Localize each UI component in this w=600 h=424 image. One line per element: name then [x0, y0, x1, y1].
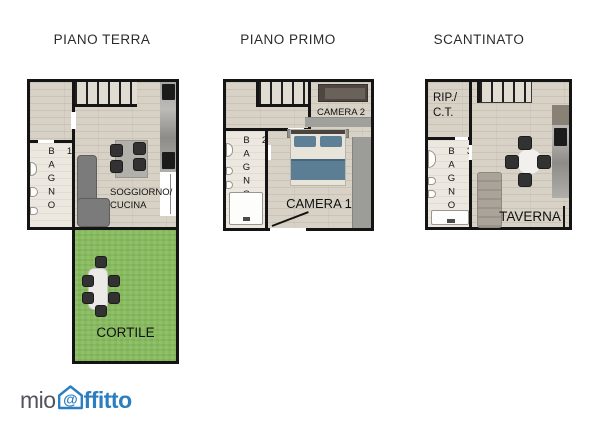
logo-text-affitto: ffitto — [84, 389, 132, 412]
bidet-icon — [30, 207, 38, 215]
room-label-cortile: CORTILE — [85, 325, 166, 340]
cortile-courtyard: CORTILE — [72, 227, 179, 364]
wardrobe — [352, 137, 371, 228]
headboard — [291, 130, 345, 134]
toilet-icon — [428, 177, 436, 185]
plan-title-piano-terra: PIANO TERRA — [27, 32, 177, 48]
bed-mattress — [325, 88, 365, 99]
chair — [82, 275, 94, 287]
chair — [95, 305, 107, 317]
chair — [95, 256, 107, 268]
label-line: C.T. — [433, 106, 457, 121]
room-label-rip-ct: RIP./ C.T. — [433, 91, 457, 121]
label-line: CUCINA — [110, 199, 172, 212]
bed-camera-2 — [318, 84, 368, 102]
room-bagno-1: BAGNO 1 — [30, 140, 75, 227]
door-gap — [71, 112, 76, 129]
staircase — [256, 82, 308, 107]
chair — [82, 292, 94, 304]
room-bagno-3: BAGNO 3 — [428, 140, 472, 227]
pillow — [320, 136, 342, 147]
at-glyph: @ — [63, 392, 78, 409]
staircase — [477, 82, 532, 103]
plan-title-piano-primo: PIANO PRIMO — [213, 32, 363, 48]
label-line: RIP./ — [433, 91, 457, 106]
door-gap — [270, 228, 306, 231]
floorplan-image: PIANO TERRA PIANO PRIMO SCANTINATO SOGGI… — [0, 0, 600, 424]
room-rip-ct: RIP./ C.T. — [428, 82, 472, 140]
drain — [243, 217, 250, 221]
toilet-icon — [30, 187, 38, 197]
door-gap — [38, 140, 54, 143]
chair — [537, 155, 551, 169]
floorplan-piano-terra: SOGGIORNO/ CUCINA BAGNO 1 — [27, 79, 179, 230]
plan-title-scantinato: SCANTINATO — [404, 32, 554, 48]
chair — [108, 275, 120, 287]
mioaffitto-logo: mio @ ffitto — [20, 384, 132, 412]
room-label-soggiorno-cucina: SOGGIORNO/ CUCINA — [110, 186, 172, 212]
door-gap — [469, 145, 472, 160]
shower-icon — [431, 210, 469, 225]
oven-icon — [554, 128, 567, 146]
sink-icon — [226, 143, 233, 157]
room-label-bagno-3: BAGNO 3 — [442, 146, 460, 218]
oven-icon — [162, 84, 175, 100]
room-bagno-2: BAGNO 2 — [226, 131, 268, 228]
counter-top — [552, 105, 569, 125]
bidet-icon — [226, 181, 233, 189]
pillow — [294, 136, 316, 147]
chair — [518, 136, 532, 150]
blanket — [291, 159, 345, 180]
wardrobe — [305, 117, 371, 127]
room-label-camera-1: CAMERA 1 — [282, 196, 356, 211]
room-label-bagno-1: BAGNO 1 — [42, 146, 60, 226]
chair — [133, 142, 146, 155]
chair — [505, 155, 519, 169]
label-line: SOGGIORNO/ — [110, 186, 172, 199]
chair — [108, 292, 120, 304]
house-at-icon: @ — [57, 384, 84, 414]
bathtub-icon — [229, 192, 263, 225]
sofa — [77, 198, 110, 227]
floorplan-piano-primo: CAMERA 2 CAMERA 1 BAGNO 2 — [223, 79, 374, 231]
floorplan-scantinato: RIP./ C.T. TAVERNA BAGNO 3 — [425, 79, 572, 230]
chair — [518, 173, 532, 187]
chair — [133, 158, 146, 171]
sink-icon — [30, 162, 37, 176]
bidet-icon — [428, 190, 436, 198]
room-label-taverna: TAVERNA — [498, 209, 562, 224]
chair — [110, 160, 123, 173]
toilet-icon — [226, 167, 233, 175]
logo-text-mio: mio — [20, 389, 56, 412]
staircase — [72, 82, 137, 107]
chair — [110, 144, 123, 157]
door-gap — [268, 145, 271, 160]
sink-icon — [428, 150, 436, 168]
door-marker — [563, 206, 565, 228]
cooktop-icon — [162, 152, 175, 169]
bed-camera-1 — [290, 129, 346, 186]
drain — [447, 219, 455, 223]
